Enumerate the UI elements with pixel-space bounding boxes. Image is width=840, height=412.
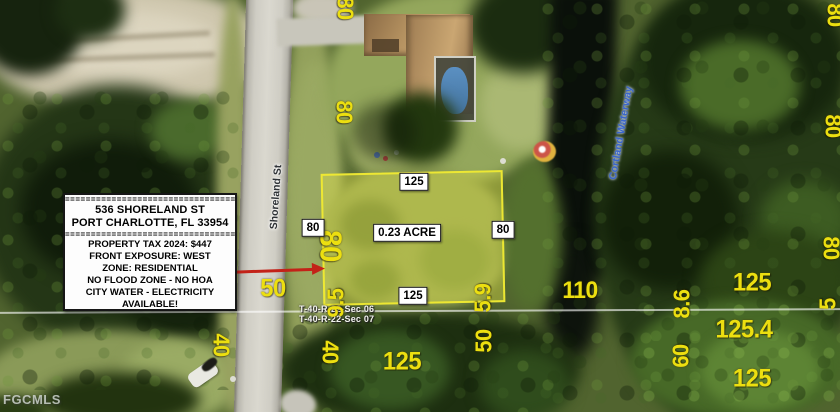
info-detail-available: AVAILABLE!: [65, 299, 235, 311]
parcel-label-0_23_ACRE: 0.23 ACRE: [373, 224, 441, 242]
measurement-125_4-14: 125.4: [715, 318, 772, 343]
measurement-9_5-3: 9.5: [325, 289, 348, 318]
parcel-label-125: 125: [398, 287, 427, 305]
house-roof-valley: [372, 39, 399, 52]
measurement-40-4: 40: [319, 340, 342, 363]
mls-watermark: FGCMLS: [3, 392, 61, 407]
patio-umbrella: [533, 141, 556, 162]
aerial-map: T-40-R-22-Sec 06 T-40-R-22-Sec 07 Shorel…: [0, 0, 840, 412]
tree-shadow: [352, 103, 416, 161]
parcel-label-125: 125: [399, 173, 428, 191]
info-divider: ========================================…: [65, 231, 235, 239]
parcel-label-80: 80: [492, 221, 515, 239]
measurement-125-12: 125: [383, 350, 421, 375]
measurement-50-7: 50: [473, 329, 496, 352]
info-address-line2: PORT CHARLOTTE, FL 33954: [65, 217, 235, 230]
pointer-arrow-line: [236, 268, 314, 274]
measurement-80-19: 80: [824, 3, 840, 26]
measurement-125-13: 125: [733, 271, 771, 296]
info-address-line1: 536 SHORELAND ST: [65, 204, 235, 217]
property-info-box: ========================================…: [63, 193, 237, 311]
measurement-50-5: 50: [260, 277, 285, 302]
measurement-80-16: 80: [822, 114, 840, 137]
measurement-110-9: 110: [562, 279, 597, 303]
tree-canopy: [680, 40, 800, 130]
measurement-8_6-10: 8.6: [671, 290, 694, 319]
info-detail-utilities: CITY WATER - ELECTRICITY: [65, 287, 235, 299]
measurement-60-11: 60: [670, 344, 693, 367]
info-detail-flood-hoa: NO FLOOD ZONE - NO HOA: [65, 275, 235, 287]
measurement-80-1: 80: [333, 100, 356, 123]
measurement-5_9-6: 5.9: [472, 284, 495, 313]
info-detail-tax: PROPERTY TAX 2024: $447: [65, 239, 235, 251]
mailbox: [230, 376, 236, 382]
measurement-40-8: 40: [210, 333, 233, 356]
measurement-5-18: 5: [817, 298, 840, 310]
tree-canopy: [480, 350, 570, 412]
measurement-80-17: 80: [820, 236, 840, 259]
measurement-80-0: 80: [334, 0, 357, 20]
info-detail-zone: ZONE: RESIDENTIAL: [65, 263, 235, 275]
info-divider: ========================================…: [65, 196, 235, 204]
pointer-arrow-head: [312, 262, 325, 274]
parcel-label-80: 80: [302, 219, 325, 237]
measurement-125-15: 125: [733, 367, 771, 392]
yard-item: [500, 158, 506, 164]
info-detail-exposure: FRONT EXPOSURE: WEST: [65, 251, 235, 263]
